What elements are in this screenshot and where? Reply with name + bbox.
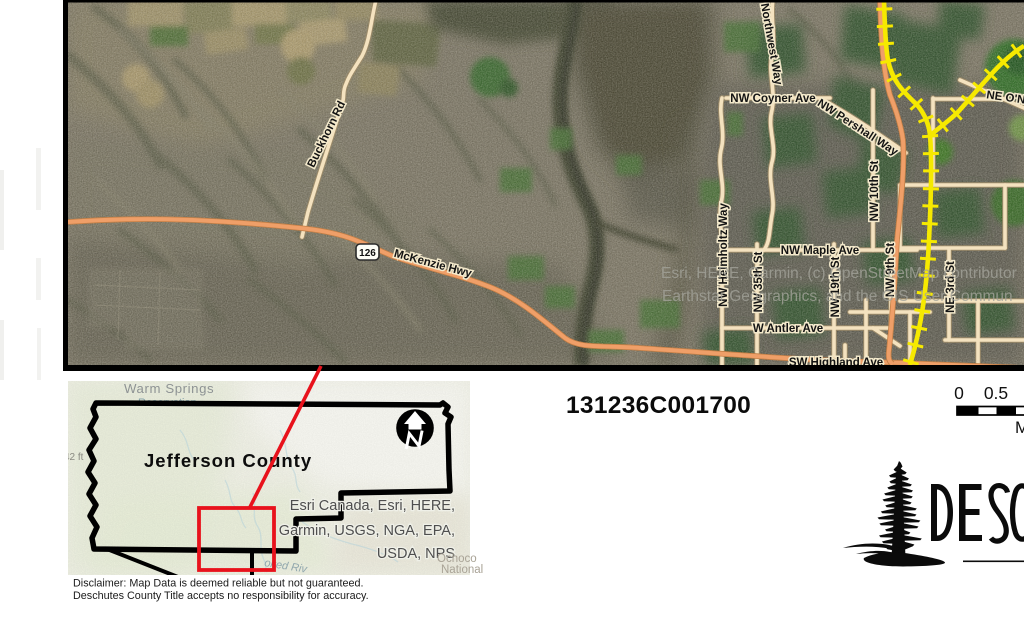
- svg-text:131236C001700: 131236C001700: [566, 392, 751, 419]
- svg-text:Jefferson County: Jefferson County: [144, 450, 312, 471]
- svg-text:NW 10th St: NW 10th St: [869, 160, 881, 221]
- svg-text:W Antler Ave: W Antler Ave: [753, 323, 823, 335]
- svg-text:Deschutes County Title accepts: Deschutes County Title accepts no respon…: [73, 590, 369, 602]
- svg-text:126: 126: [359, 248, 376, 259]
- svg-text:Earthstar Geographics, and the: Earthstar Geographics, and the GIS User …: [662, 288, 1013, 305]
- svg-text:Warm Springs: Warm Springs: [124, 381, 214, 396]
- svg-text:Esri, HERE, Garmin, (c) OpenSt: Esri, HERE, Garmin, (c) OpenStreetMap co…: [661, 265, 1017, 282]
- svg-text:Esri Canada, Esri, HERE,: Esri Canada, Esri, HERE,: [290, 498, 455, 514]
- svg-text:Disclaimer: Map Data is deeme: Disclaimer: Map Data is deemed reliable …: [73, 578, 363, 590]
- svg-text:0.5: 0.5: [984, 383, 1008, 403]
- svg-text:NW Coyner Ave: NW Coyner Ave: [730, 93, 815, 105]
- svg-text:0: 0: [954, 383, 964, 403]
- svg-text:Mil: Mil: [1015, 418, 1024, 437]
- svg-text:National: National: [441, 564, 483, 576]
- svg-text:NW Maple Ave: NW Maple Ave: [781, 245, 859, 257]
- svg-text:Garmin, USGS, NGA, EPA,: Garmin, USGS, NGA, EPA,: [279, 523, 455, 539]
